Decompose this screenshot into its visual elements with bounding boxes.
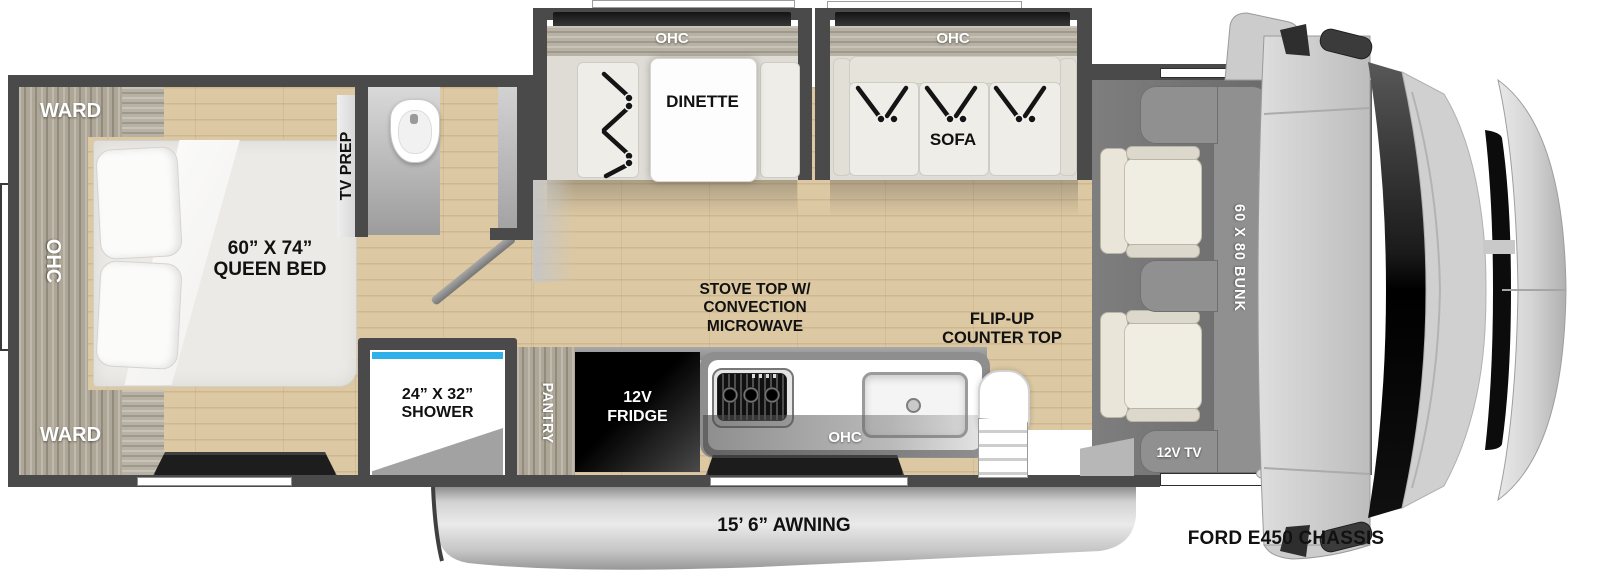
cab-exterior	[1180, 0, 1600, 581]
rv-floorplan: WARD OHC WARD 60” X 74” QUEEN BED TV PRE…	[0, 0, 1600, 581]
entry-steps	[978, 418, 1028, 478]
awning-label: 15’ 6” AWNING	[659, 515, 909, 536]
chassis-label: FORD E450 CHASSIS	[1161, 528, 1411, 549]
